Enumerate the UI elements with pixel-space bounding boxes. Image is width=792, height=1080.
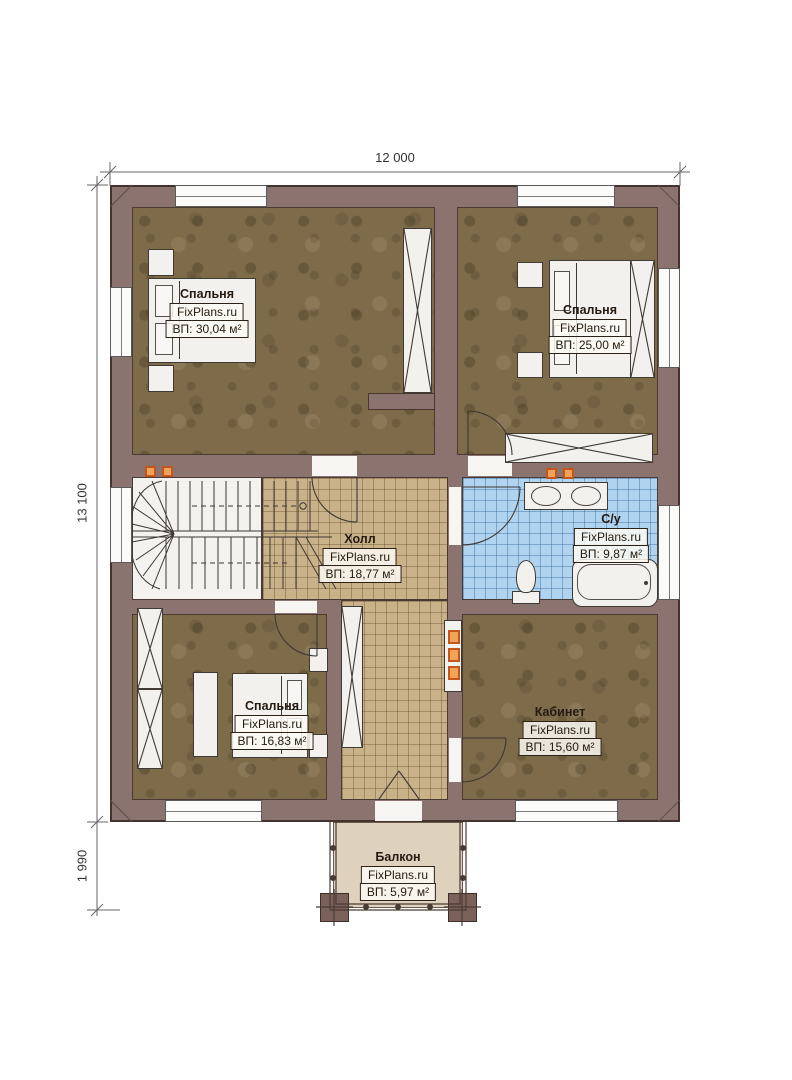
area-label: ВП: 25,00 м² <box>549 336 632 354</box>
room-label-bathroom: С/у FixPlans.ru ВП: 9,87 м² <box>573 512 649 563</box>
room-name: С/у <box>601 512 620 526</box>
room-label-office: Кабинет FixPlans.ru ВП: 15,60 м² <box>519 705 602 756</box>
window-bottom-right <box>515 800 618 822</box>
watermark-label: FixPlans.ru <box>323 548 397 566</box>
room-name: Балкон <box>375 850 420 864</box>
dimension-width: 12 000 <box>375 150 415 165</box>
nightstand <box>309 648 328 672</box>
wardrobe <box>137 689 163 769</box>
watermark-label: FixPlans.ru <box>574 528 648 546</box>
room-label-hall: Холл FixPlans.ru ВП: 18,77 м² <box>319 532 402 583</box>
dimension-height: 13 100 <box>75 483 90 523</box>
radiator-marker <box>162 466 173 477</box>
wardrobe <box>630 260 655 378</box>
area-label: ВП: 15,60 м² <box>519 738 602 756</box>
toilet-bowl <box>516 560 536 593</box>
area-label: ВП: 5,97 м² <box>360 883 436 901</box>
bathtub-inner <box>577 564 651 600</box>
room-name: Спальня <box>563 303 617 317</box>
balcony-column-left <box>320 893 349 922</box>
riser-marker <box>448 666 460 680</box>
window-left-bedroom <box>110 287 132 357</box>
room-label-bedroom-top-right: Спальня FixPlans.ru ВП: 25,00 м² <box>549 303 632 354</box>
nightstand <box>148 365 174 392</box>
door-opening-bathroom <box>449 487 461 545</box>
nightstand <box>517 352 543 378</box>
radiator-marker <box>563 468 574 479</box>
riser-marker <box>448 630 460 644</box>
nightstand <box>517 262 543 288</box>
window-top-left <box>175 185 267 207</box>
bathtub <box>572 559 658 607</box>
wall-niche-jog <box>368 393 435 410</box>
dimension-balcony: 1 990 <box>75 850 90 883</box>
radiator-marker <box>546 468 557 479</box>
watermark-label: FixPlans.ru <box>170 303 244 321</box>
wardrobe <box>137 608 163 689</box>
window-left-stairwell <box>110 487 132 563</box>
room-name: Холл <box>344 532 375 546</box>
bathtub-drain <box>644 581 648 585</box>
watermark-label: FixPlans.ru <box>523 721 597 739</box>
room-label-bedroom-top-left: Спальня FixPlans.ru ВП: 30,04 м² <box>166 287 249 338</box>
area-label: ВП: 30,04 м² <box>166 320 249 338</box>
floor-plan-canvas: 12 000 13 100 1 990 Спальня FixPlans.ru … <box>0 0 792 1080</box>
watermark-label: FixPlans.ru <box>361 866 435 884</box>
door-opening-balcony <box>375 801 422 821</box>
door-opening-office <box>449 738 461 782</box>
vanity <box>524 482 608 510</box>
watermark-label: FixPlans.ru <box>553 319 627 337</box>
sink <box>571 486 601 506</box>
wardrobe <box>341 606 363 748</box>
room-name: Спальня <box>180 287 234 301</box>
room-label-balcony: Балкон FixPlans.ru ВП: 5,97 м² <box>360 850 436 901</box>
riser-marker <box>448 648 460 662</box>
room-label-bedroom-bottom: Спальня FixPlans.ru ВП: 16,83 м² <box>231 699 314 750</box>
floor-stairwell <box>132 477 262 600</box>
wardrobe <box>505 433 653 463</box>
area-label: ВП: 9,87 м² <box>573 545 649 563</box>
door-opening-bedroom-bottom <box>275 601 317 613</box>
room-name: Спальня <box>245 699 299 713</box>
window-right-bedroom <box>658 268 680 368</box>
radiator-marker <box>145 466 156 477</box>
window-right-bathroom <box>658 505 680 600</box>
door-opening-bedroom-top-left <box>312 456 357 476</box>
room-name: Кабинет <box>535 705 586 719</box>
area-label: ВП: 16,83 м² <box>231 732 314 750</box>
window-bottom-left <box>165 800 262 822</box>
balcony-column-right <box>448 893 477 922</box>
wardrobe <box>403 228 432 393</box>
area-label: ВП: 18,77 м² <box>319 565 402 583</box>
nightstand <box>148 249 174 276</box>
window-top-right <box>517 185 615 207</box>
watermark-label: FixPlans.ru <box>235 715 309 733</box>
sink <box>531 486 561 506</box>
dresser <box>193 672 218 757</box>
